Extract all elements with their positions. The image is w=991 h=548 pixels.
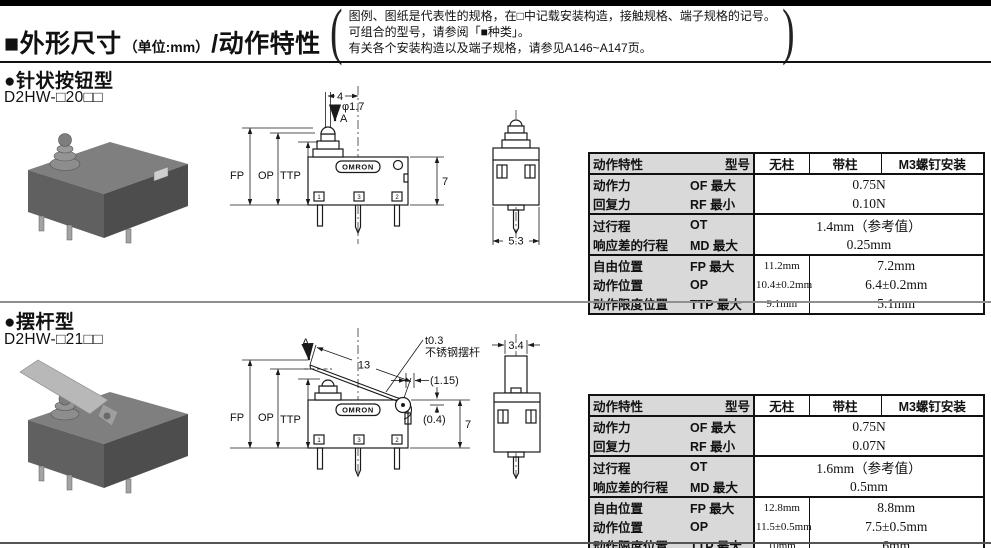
table-row: 回复力RF 最小 0.07N [589, 436, 984, 456]
terminal-leg [318, 205, 323, 226]
plunger-step [508, 126, 524, 133]
dim-ttp: TTP [280, 414, 301, 426]
operation-arrow [308, 349, 309, 360]
spec-table-lever: 动作特性型号 无柱 带柱 M3螺钉安装 动作力OF 最大 0.75N 回复力RF… [588, 394, 985, 548]
lever-type-front-drawing: OMRON 1 3 2 A 13 t0.3 不锈钢摆杆 [228, 324, 486, 506]
header-rule [0, 61, 991, 63]
pivot-center [401, 403, 405, 407]
arrow-label-a: A [302, 337, 310, 349]
pin-type-side-drawing: 5.3 [488, 108, 558, 250]
row-label-cell: 动作位置OP [589, 517, 754, 536]
dim-3-4: 3.4 [508, 340, 523, 352]
plunger-step [321, 134, 335, 141]
row-label-cell: 回复力RF 最小 [589, 436, 754, 456]
dim-op: OP [258, 412, 274, 424]
plunger-step [317, 141, 339, 149]
dim-line [317, 348, 352, 361]
value-cell: 7.2mm [809, 255, 984, 275]
omron-logo-text: OMRON [342, 406, 374, 415]
table-row: 动作位置OP 11.5±0.5mm 7.5±0.5mm [589, 517, 984, 536]
terminal-leg [318, 448, 323, 469]
page-title: ■外形尺寸 （单位:mm） /动作特性 [4, 24, 321, 60]
row-label-cell: 过行程OT [589, 456, 754, 477]
dim-dia-1-7: φ1.7 [342, 101, 364, 113]
table-row: 动作力OF 最大 0.75N [589, 416, 984, 436]
header-characteristic-cell: 动作特性型号 [589, 153, 754, 174]
ext-line [310, 345, 316, 365]
row-label-cell: 自由位置FP 最大 [589, 497, 754, 517]
row-label-cell: 响应差的行程MD 最大 [589, 235, 754, 255]
terminal-pin [39, 466, 44, 481]
model-code-lever: D2HW-□21□□ [4, 331, 103, 349]
value-cell: 7.5±0.5mm [809, 517, 984, 536]
lever-tip [310, 365, 311, 369]
header-col-nopin: 无柱 [754, 395, 809, 416]
row-label-cell: 动作位置OP [589, 275, 754, 294]
header-characteristic-cell: 动作特性型号 [589, 395, 754, 416]
value-cell: 0.75N [754, 416, 984, 436]
terminal-pin [67, 225, 72, 240]
terminal-pin [126, 479, 131, 493]
table-row: 自由位置FP 最大 11.2mm 7.2mm [589, 255, 984, 275]
product-photo-lever [8, 356, 218, 506]
omron-logo-text: OMRON [342, 163, 374, 172]
dim-5-3: 5.3 [508, 236, 523, 248]
value-cell: 0.10N [754, 194, 984, 214]
table-header-row: 动作特性型号 无柱 带柱 M3螺钉安装 [589, 153, 984, 174]
table-row: 动作限度位置TTP 最大 9.1mm 5.1mm [589, 294, 984, 314]
table-header-row: 动作特性型号 无柱 带柱 M3螺钉安装 [589, 395, 984, 416]
value-cell: 0.07N [754, 436, 984, 456]
plunger-step [315, 393, 341, 400]
note-paren-open: ( [330, 4, 342, 60]
note-lines: 图例、图纸是代表性的规格，在□中记载安装构造，接触规格、端子规格的记号。 可组合… [349, 8, 776, 56]
value-cell: 5.1mm [809, 294, 984, 314]
page-title-suffix: /动作特性 [211, 24, 320, 60]
value-cell: 0.5mm [754, 477, 984, 497]
dim-1-15: (1.15) [430, 375, 459, 387]
value-cell: 0.75N [754, 174, 984, 194]
dim-fp: FP [230, 412, 244, 424]
plunger-step [502, 140, 530, 148]
table-row: 回复力RF 最小 0.10N [589, 194, 984, 214]
plunger-dome [321, 127, 335, 134]
row-label-cell: 动作限度位置TTP 最大 [589, 294, 754, 314]
dim-fp: FP [230, 170, 244, 182]
section-divider [0, 301, 991, 303]
value-cell: 11.2mm [754, 255, 809, 275]
note-line: 图例、图纸是代表性的规格，在□中记载安装构造，接触规格、端子规格的记号。 [349, 8, 776, 24]
table-row: 自由位置FP 最大 12.8mm 8.8mm [589, 497, 984, 517]
dim-ttp: TTP [280, 170, 301, 182]
spec-table-pin-button: 动作特性型号 无柱 带柱 M3螺钉安装 动作力OF 最大 0.75N 回复力RF… [588, 152, 985, 315]
plunger-step [319, 386, 337, 393]
value-cell: 1.6mm（参考值） [754, 456, 984, 477]
value-cell: 10.4±0.2mm [754, 275, 809, 294]
terminal-leg [395, 205, 400, 226]
value-cell: 6.4±0.2mm [809, 275, 984, 294]
table-row: 过行程OT 1.4mm（参考值） [589, 214, 984, 235]
pin-type-front-drawing: OMRON 1 3 2 4 φ1.7 A FP OP TTP [228, 84, 476, 249]
row-label-cell: 过行程OT [589, 214, 754, 235]
table-row: 动作位置OP 10.4±0.2mm 6.4±0.2mm [589, 275, 984, 294]
bottom-rule [0, 542, 991, 544]
section-title-lever: ●摆杆型 [4, 307, 74, 334]
table-row: 响应差的行程MD 最大 0.25mm [589, 235, 984, 255]
value-cell: 8.8mm [809, 497, 984, 517]
terminal-leg [395, 448, 400, 469]
table-row: 响应差的行程MD 最大 0.5mm [589, 477, 984, 497]
row-label-cell: 自由位置FP 最大 [589, 255, 754, 275]
terminal-pin [39, 216, 44, 231]
plunger-dome [510, 120, 522, 126]
table-row: 过行程OT 1.6mm（参考值） [589, 456, 984, 477]
value-cell: 0.25mm [754, 235, 984, 255]
row-label-cell: 动作力OF 最大 [589, 174, 754, 194]
value-cell: 11.5±0.5mm [754, 517, 809, 536]
row-label-cell: 动作力OF 最大 [589, 416, 754, 436]
datasheet-page: ■外形尺寸 （单位:mm） /动作特性 ( 图例、图纸是代表性的规格，在□中记载… [0, 0, 991, 548]
header-note: ( 图例、图纸是代表性的规格，在□中记载安装构造，接触规格、端子规格的记号。 可… [326, 4, 756, 60]
page-title-main: ■外形尺寸 [4, 24, 122, 60]
plunger-dome [322, 380, 334, 386]
terminal-pin [67, 475, 72, 490]
value-cell: 1.4mm（参考值） [754, 214, 984, 235]
switch-body-outline [493, 148, 539, 205]
header-col-pin: 带柱 [809, 395, 881, 416]
table-row: 动作力OF 最大 0.75N [589, 174, 984, 194]
row-label-cell: 响应差的行程MD 最大 [589, 477, 754, 497]
lever-note-material: 不锈钢摆杆 [425, 345, 480, 359]
dim-13: 13 [358, 360, 370, 372]
value-cell: 12.8mm [754, 497, 809, 517]
lever-type-side-drawing: 3.4 [486, 330, 570, 490]
note-line: 有关各个安装构造以及端子规格，请参见A146~A147页。 [349, 40, 776, 56]
value-cell: 9.1mm [754, 294, 809, 314]
header-col-m3: M3螺钉安装 [881, 395, 984, 416]
terminal-pin [126, 229, 131, 243]
arrow-label-a: A [340, 113, 348, 125]
lever-pivot-hole [104, 413, 111, 420]
dim-7: 7 [442, 176, 448, 188]
header-col-m3: M3螺钉安装 [881, 153, 984, 174]
header-col-pin: 带柱 [809, 153, 881, 174]
dim-op: OP [258, 170, 274, 182]
note-line: 可组合的型号，请参阅「■种类」。 [349, 24, 776, 40]
leader-line [386, 340, 423, 392]
page-title-unit: （单位:mm） [124, 37, 210, 57]
note-paren-close: ) [782, 4, 794, 60]
row-label-cell: 回复力RF 最小 [589, 194, 754, 214]
plunger-step [313, 149, 343, 157]
header-col-nopin: 无柱 [754, 153, 809, 174]
dim-7: 7 [465, 419, 471, 431]
plunger-dome [59, 134, 72, 147]
lever-note-thickness: t0.3 [425, 335, 443, 347]
model-code-pin-button: D2HW-□20□□ [4, 89, 103, 107]
product-photo-pin-button [8, 112, 203, 247]
dim-0-4: (0.4) [423, 414, 446, 426]
plunger-step [505, 133, 527, 140]
